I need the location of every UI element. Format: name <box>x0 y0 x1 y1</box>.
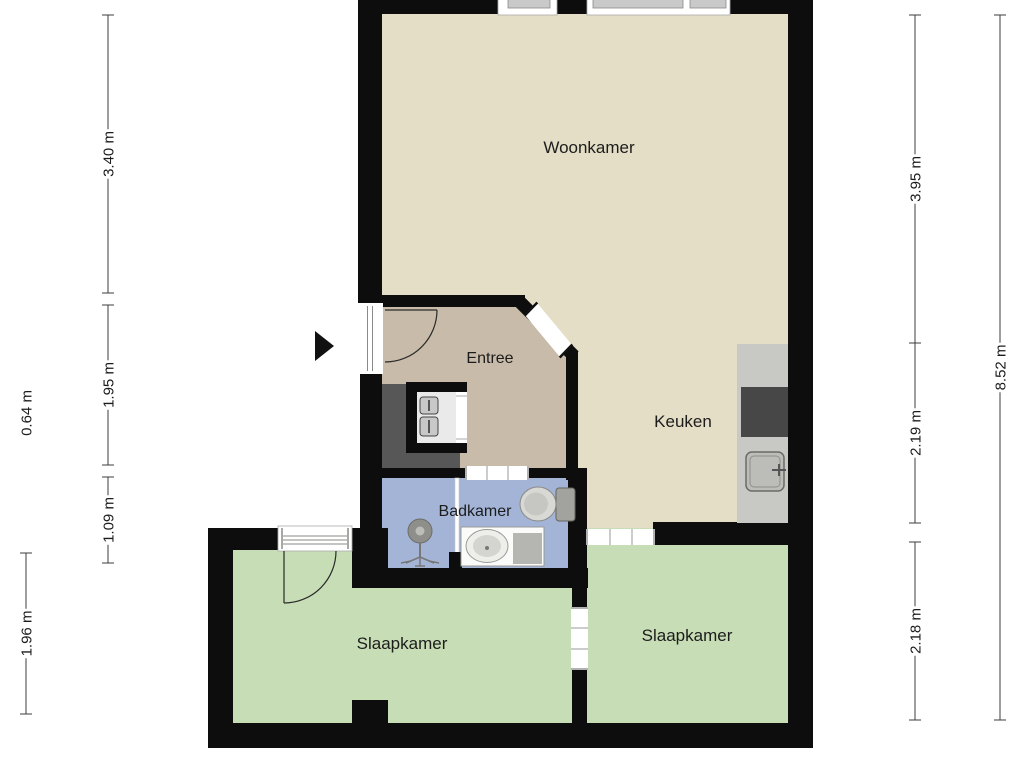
door-kitchen-bedroom <box>586 529 655 545</box>
window-top-2 <box>587 0 730 15</box>
toilet-icon <box>520 487 575 521</box>
window-frame <box>278 526 352 551</box>
dimension-label: 3.40 m <box>100 131 117 177</box>
dimension-label: 1.95 m <box>100 362 117 408</box>
dimension-label: 0.64 m <box>18 390 35 436</box>
wall-kitchen-bottom <box>653 522 790 545</box>
dimension-label: 2.18 m <box>907 608 924 654</box>
front-door-opening <box>357 303 383 374</box>
utility-area <box>372 382 467 468</box>
floor-plan-drawing: Woonkamer Keuken Entree Badkamer Slaapka… <box>0 0 1024 768</box>
dimension-0.64-m: 0.64 m <box>18 390 35 436</box>
dimension-2.18-m: 2.18 m <box>907 542 924 720</box>
washbasin-drain <box>485 546 489 550</box>
meter-cupboard-wall-top <box>406 382 467 392</box>
room-label-badkamer: Badkamer <box>439 503 513 520</box>
toilet-tank <box>556 488 575 521</box>
wall-right <box>788 0 813 748</box>
wall-left-upper <box>358 0 382 307</box>
dimension-8.52-m: 8.52 m <box>992 15 1009 720</box>
entrance-arrow <box>315 331 334 361</box>
wall-bathroom-bottom <box>382 568 588 588</box>
room-label-slaapkamer-left: Slaapkamer <box>357 634 448 653</box>
room-label-slaapkamer-right: Slaapkamer <box>642 626 733 645</box>
partition-stub-wall <box>449 552 462 569</box>
dimension-label: 3.95 m <box>907 156 924 202</box>
dimension-1.96-m: 1.96 m <box>18 553 35 714</box>
meter-cupboard-door <box>456 392 467 443</box>
wall-top <box>358 0 813 14</box>
meter-cupboard-wall-left <box>406 392 417 445</box>
cooktop-icon <box>741 387 788 437</box>
window-glass <box>593 0 683 8</box>
kitchen-fixtures <box>737 344 788 523</box>
door-between-bedrooms <box>571 607 588 670</box>
dimension-label: 1.09 m <box>100 497 117 543</box>
floor-plan-page: Woonkamer Keuken Entree Badkamer Slaapka… <box>0 0 1024 768</box>
wall-entree-right <box>566 352 578 480</box>
washbasin-icon <box>461 527 544 566</box>
door-bathroom <box>465 466 529 480</box>
door-opening <box>586 529 655 545</box>
dimension-3.95-m: 3.95 m <box>907 15 924 343</box>
meter-cupboard-wall-bottom <box>406 443 467 453</box>
room-label-entree: Entree <box>466 350 513 367</box>
dimension-3.40-m: 3.40 m <box>100 15 117 293</box>
dimension-label: 2.19 m <box>907 410 924 456</box>
room-label-keuken: Keuken <box>654 412 712 431</box>
shower-head-center <box>416 527 425 536</box>
window-glass <box>690 0 726 8</box>
window-top-1 <box>498 0 557 15</box>
dimension-1.09-m: 1.09 m <box>100 477 117 563</box>
door-opening <box>571 607 588 670</box>
room-label-woonkamer: Woonkamer <box>543 138 635 157</box>
window-glass <box>508 0 550 8</box>
washbasin-side <box>513 533 542 564</box>
dimension-1.95-m: 1.95 m <box>100 305 117 465</box>
wall-entree-top <box>358 295 525 307</box>
wall-bedroom-left <box>208 528 233 748</box>
door-opening <box>465 466 529 480</box>
wall-bottom <box>208 723 813 748</box>
dimension-label: 1.96 m <box>18 611 35 657</box>
toilet-bowl-inner <box>524 493 548 516</box>
dimension-label: 8.52 m <box>992 345 1009 391</box>
dimension-2.19-m: 2.19 m <box>907 343 924 523</box>
wall-bottom-step <box>352 700 388 725</box>
